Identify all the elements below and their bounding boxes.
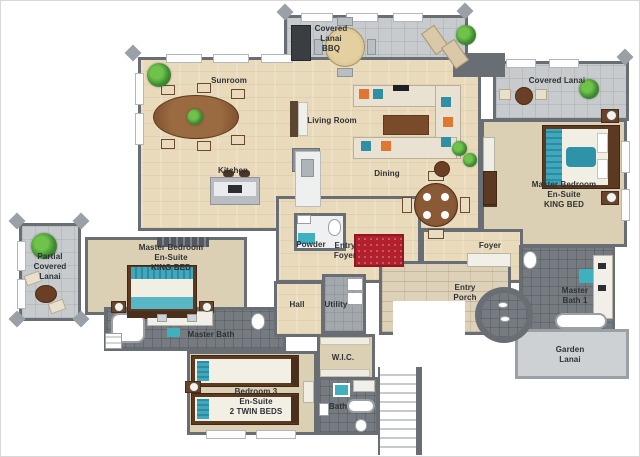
powder-sink: [297, 215, 311, 224]
king-bed-foot-stripe: [546, 129, 562, 185]
window: [549, 59, 579, 68]
throw-pillow: [443, 117, 453, 127]
room-label-hall: Hall: [289, 300, 304, 310]
bathtub: [555, 313, 607, 329]
dining-chair: [231, 89, 245, 99]
window: [621, 189, 630, 221]
bistro-chair: [535, 89, 547, 100]
faucet: [598, 285, 606, 291]
dining-chair: [161, 85, 175, 95]
window: [301, 13, 333, 22]
pillow: [597, 159, 608, 179]
potted-plant: [463, 153, 477, 167]
shower: [333, 383, 350, 397]
pillow: [597, 133, 608, 153]
washer: [347, 278, 363, 291]
twin-bed-mattress: [195, 359, 291, 383]
outdoor-chair: [367, 39, 376, 55]
footboard: [291, 357, 299, 385]
lamp: [202, 302, 212, 312]
throw-pillow: [361, 141, 371, 151]
window: [135, 113, 144, 145]
lamp: [606, 192, 617, 203]
room-label-garden-lanai: Garden Lanai: [556, 345, 585, 365]
window: [621, 141, 630, 173]
window: [256, 430, 296, 439]
place-setting: [423, 211, 431, 219]
room-label-covered-lanai: Covered Lanai: [529, 76, 585, 86]
wic-shelf: [320, 337, 370, 345]
vanity-sink: [157, 314, 167, 322]
room-label-dining: Dining: [374, 169, 399, 179]
room-label-sunroom: Sunroom: [211, 76, 247, 86]
throw-pillow: [381, 141, 391, 151]
place-setting: [423, 193, 431, 201]
room-label-wic: W.I.C.: [332, 353, 354, 363]
console-table: [467, 253, 511, 267]
toilet: [523, 251, 537, 269]
room-label-entry-porch: Entry Porch: [453, 283, 476, 303]
dining-chair: [197, 83, 211, 93]
porch-cutout: [393, 301, 465, 337]
bath-vanity: [353, 380, 375, 392]
room-label-master-bath-1: Master Bath 1: [562, 286, 588, 306]
cooktop: [228, 185, 242, 193]
window: [17, 279, 26, 309]
room-label-partial-covered-lanai: Partial Covered Lanai: [34, 252, 67, 282]
sink: [319, 403, 329, 416]
dining-chair: [428, 229, 444, 239]
bbq-grill: [291, 25, 311, 61]
window: [506, 59, 536, 68]
wic-shelf: [320, 369, 370, 377]
entry-vestibule: [475, 287, 533, 343]
room-label-master-bath: Master Bath: [188, 330, 235, 340]
window: [261, 54, 293, 63]
dining-table: [414, 183, 458, 227]
place-setting: [441, 211, 449, 219]
window: [135, 73, 144, 105]
bistro-table: [515, 87, 533, 105]
toilet: [355, 419, 367, 432]
window: [393, 13, 423, 22]
room-label-master-bedroom-2: Master Bedroom En-Suite KING BED: [532, 180, 597, 210]
entry-rug: [354, 234, 404, 267]
bathtub: [347, 399, 375, 413]
bed-runner: [566, 147, 596, 167]
bistro-table: [35, 285, 57, 303]
room-label-kitchen: Kitchen: [218, 166, 248, 176]
vestibule-light: [500, 316, 510, 322]
tv: [393, 85, 409, 91]
entry-stairs: [378, 367, 422, 455]
lamp: [189, 382, 199, 392]
footboard: [291, 395, 299, 423]
shower-mat: [579, 269, 594, 283]
room-label-covered-lanai-bbq: Covered Lanai BBQ: [315, 24, 348, 54]
room-label-foyer: Foyer: [479, 241, 501, 251]
coffee-table: [383, 115, 429, 135]
vanity-sink: [187, 314, 197, 322]
place-setting: [441, 193, 449, 201]
window: [166, 54, 202, 63]
media-cabinet: [290, 101, 298, 137]
lamp: [606, 110, 617, 121]
room-label-living-room: Living Room: [307, 116, 357, 126]
throw-pillow: [359, 89, 369, 99]
toilet: [328, 219, 341, 236]
dining-chair: [402, 197, 412, 213]
twin-bed-pillow: [197, 399, 209, 419]
throw-pillow: [441, 97, 451, 107]
lamp: [114, 302, 124, 312]
room-label-powder: Powder: [296, 240, 326, 250]
twin-bed-pillow: [197, 361, 209, 381]
tall-cabinet: [483, 171, 497, 205]
toilet: [251, 313, 265, 330]
room-label-bath: Bath: [329, 402, 347, 412]
dining-chair: [161, 139, 175, 149]
desk: [303, 381, 314, 403]
room-label-master-bedroom-1: Master Bedroom En-Suite KING BED: [139, 243, 204, 273]
faucet: [598, 263, 606, 269]
potted-plant: [147, 63, 171, 87]
room-label-bedroom-3: Bedroom 3 En-Suite 2 TWIN BEDS: [230, 387, 283, 417]
window: [206, 430, 246, 439]
room-label-entry-foyer: Entry Foyer: [334, 241, 356, 261]
bath-mat: [167, 328, 180, 337]
potted-plant: [456, 25, 476, 45]
window: [213, 54, 249, 63]
room-label-utility: Utility: [325, 300, 348, 310]
ottoman: [434, 161, 450, 177]
throw-pillow: [373, 89, 383, 99]
outdoor-chair: [337, 68, 353, 77]
dining-chair: [460, 197, 470, 213]
throw-pillow: [441, 137, 451, 147]
shelf-unit: [105, 333, 122, 349]
table-centerpiece: [187, 109, 203, 125]
vestibule-light: [498, 302, 508, 308]
kitchen-sink: [301, 159, 314, 177]
dining-chair: [231, 135, 245, 145]
dryer: [347, 292, 363, 305]
floorplan-canvas: Covered Lanai BBQ Sunroom Covered Lanai …: [0, 0, 640, 457]
window: [17, 241, 26, 271]
dining-chair: [197, 141, 211, 151]
king-bed-blanket: [131, 297, 193, 309]
bistro-chair: [499, 89, 511, 100]
